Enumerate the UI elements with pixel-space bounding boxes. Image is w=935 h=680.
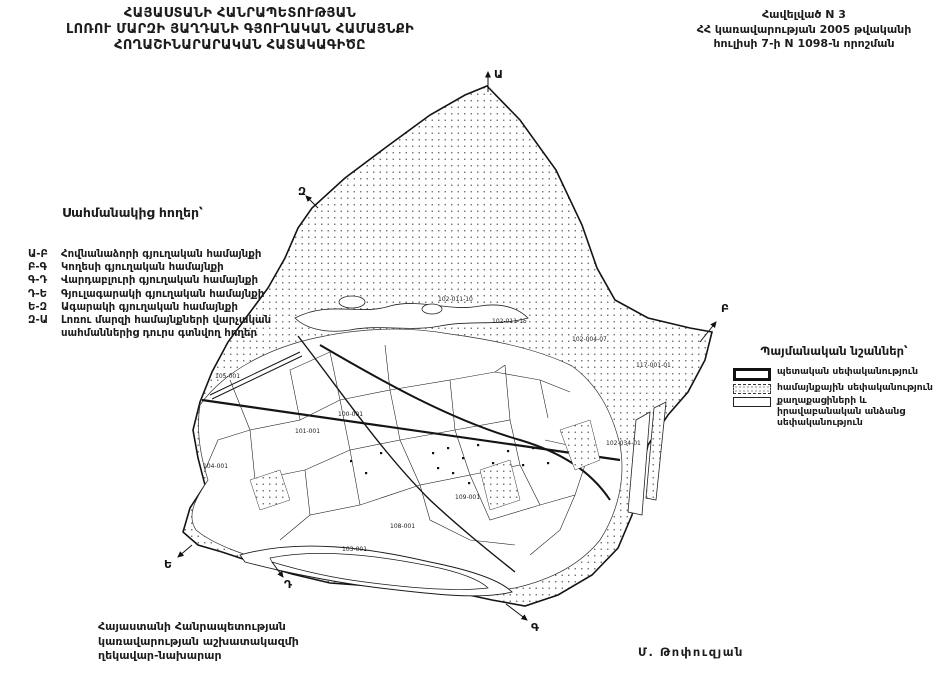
state-property-swatch (733, 368, 771, 381)
legend-item-state: պետական սեփականություն (733, 367, 935, 381)
parcel-label: 102-011-10 (438, 296, 473, 303)
legend-label: պետական սեփականություն (777, 367, 918, 378)
ravine-blob (422, 304, 442, 314)
title-line: ՀՈՂԱՇԻՆԱՐԱՐԱԿԱՆ ՀԱՏԱԿԱԳԻԾԸ (58, 38, 422, 54)
boundary-segment-code: Բ-Գ (28, 261, 61, 274)
private-property-swatch (733, 397, 771, 407)
adjacent-land-item: Զ-Ա Լոռու մարզի համայնքների վարչական սահ… (28, 314, 300, 340)
boundary-letter-a: Ա (494, 68, 503, 81)
boundary-segment-code: Զ-Ա (28, 314, 61, 340)
boundary-letter-z: Զ (298, 185, 306, 198)
annex-line: հուլիսի 7-ի N 1098-ն որոշման (678, 37, 930, 52)
boundary-segment-code: Դ-Ե (28, 288, 61, 301)
title-line: ԼՈՌՈՒ ՄԱՐԶԻ ՅԱՂԴԱՆԻ ԳՅՈՒՂԱԿԱՆ ՀԱՄԱՅՆՔԻ (58, 22, 422, 38)
adjacent-land-item: Ա-Բ Հովնանաձորի գյուղական համայնքի (28, 248, 300, 261)
adjacent-land-label: Հովնանաձորի գյուղական համայնքի (61, 248, 300, 261)
parcel-label: 104-001 (203, 463, 228, 470)
signature-line: Հայաստանի Հանրապետության (98, 620, 299, 635)
adjacent-land-item: Գ-Դ Վարդաբլուրի գյուղական համայնքի (28, 274, 300, 287)
adjacent-land-label: Գյուլագարակի գյուղական համայնքի (61, 288, 300, 301)
parcel-label: 100-001 (338, 411, 363, 418)
legend-item-private: քաղաքացիների և իրավաբանական անձանց սեփակ… (733, 396, 935, 428)
parcel-label: 105-001 (215, 373, 240, 380)
parcel-label: 102-011-15 (492, 318, 527, 325)
boundary-segment-code: Ա-Բ (28, 248, 61, 261)
parcel-label: 102-004-07 (572, 336, 607, 343)
adjacent-land-item: Դ-Ե Գյուլագարակի գյուղական համայնքի (28, 288, 300, 301)
ravine-blob (339, 296, 365, 308)
signatory-name: Մ. Թոփուզյան (638, 645, 744, 659)
parcel-label: 103-001 (342, 546, 367, 553)
conventional-signs-heading: Պայմանական նշաններ՝ (733, 344, 935, 358)
parcel-label: 101-001 (295, 428, 320, 435)
parcel-label: 109-001 (455, 494, 480, 501)
parcel-label: 108-001 (390, 523, 415, 530)
legend-item-community: համայնքային սեփականություն (733, 383, 935, 394)
adjacent-land-label: Վարդաբլուրի գյուղական համայնքի (61, 274, 300, 287)
boundary-letter-d: Դ (284, 578, 293, 591)
parcel-label: 102-034-01 (606, 440, 641, 447)
title-line: ՀԱՅԱՍՏԱՆԻ ՀԱՆՐԱՊԵՏՈՒԹՅԱՆ (58, 6, 422, 22)
annex-line: Հավելված N 3 (678, 8, 930, 23)
parcel-label: 117-001-01 (636, 362, 671, 369)
adjacent-lands-legend: Սահմանակից հողեր՝ Ա-Բ Հովնանաձորի գյուղա… (28, 205, 300, 340)
adjacent-land-label: Լոռու մարզի համայնքների վարչական սահմանն… (61, 314, 300, 340)
legend-label: քաղաքացիների և իրավաբանական անձանց սեփակ… (777, 396, 935, 428)
annex-line: ՀՀ կառավարության 2005 թվականի (678, 23, 930, 38)
legend-label: համայնքային սեփականություն (777, 383, 933, 394)
adjacent-land-label: Ագարակի գյուղական համայնքի (61, 301, 300, 314)
signature-line: ղեկավար-նախարար (98, 649, 299, 664)
adjacent-land-label: Կողեսի գյուղական համայնքի (61, 261, 300, 274)
signature-line: կառավարության աշխատակազմի (98, 635, 299, 650)
document-title: ՀԱՅԱՍՏԱՆԻ ՀԱՆՐԱՊԵՏՈՒԹՅԱՆ ԼՈՌՈՒ ՄԱՐԶԻ ՅԱՂ… (58, 6, 422, 54)
adjacent-land-item: Ե-Զ Ագարակի գյուղական համայնքի (28, 301, 300, 314)
signature-title-block: Հայաստանի Հանրապետության կառավարության ա… (98, 620, 299, 664)
boundary-letter-g: Գ (531, 621, 540, 634)
annex-note: Հավելված N 3 ՀՀ կառավարության 2005 թվակա… (678, 8, 930, 52)
adjacent-land-item: Բ-Գ Կողեսի գյուղական համայնքի (28, 261, 300, 274)
boundary-letter-ye: Ե (164, 558, 172, 571)
boundary-segment-code: Գ-Դ (28, 274, 61, 287)
boundary-letter-b: Բ (721, 302, 729, 315)
boundary-segment-code: Ե-Զ (28, 301, 61, 314)
community-property-swatch (733, 384, 771, 394)
conventional-signs-legend: Պայմանական նշաններ՝ պետական սեփականությո… (733, 344, 935, 430)
adjacent-lands-heading: Սահմանակից հողեր՝ (62, 205, 300, 220)
